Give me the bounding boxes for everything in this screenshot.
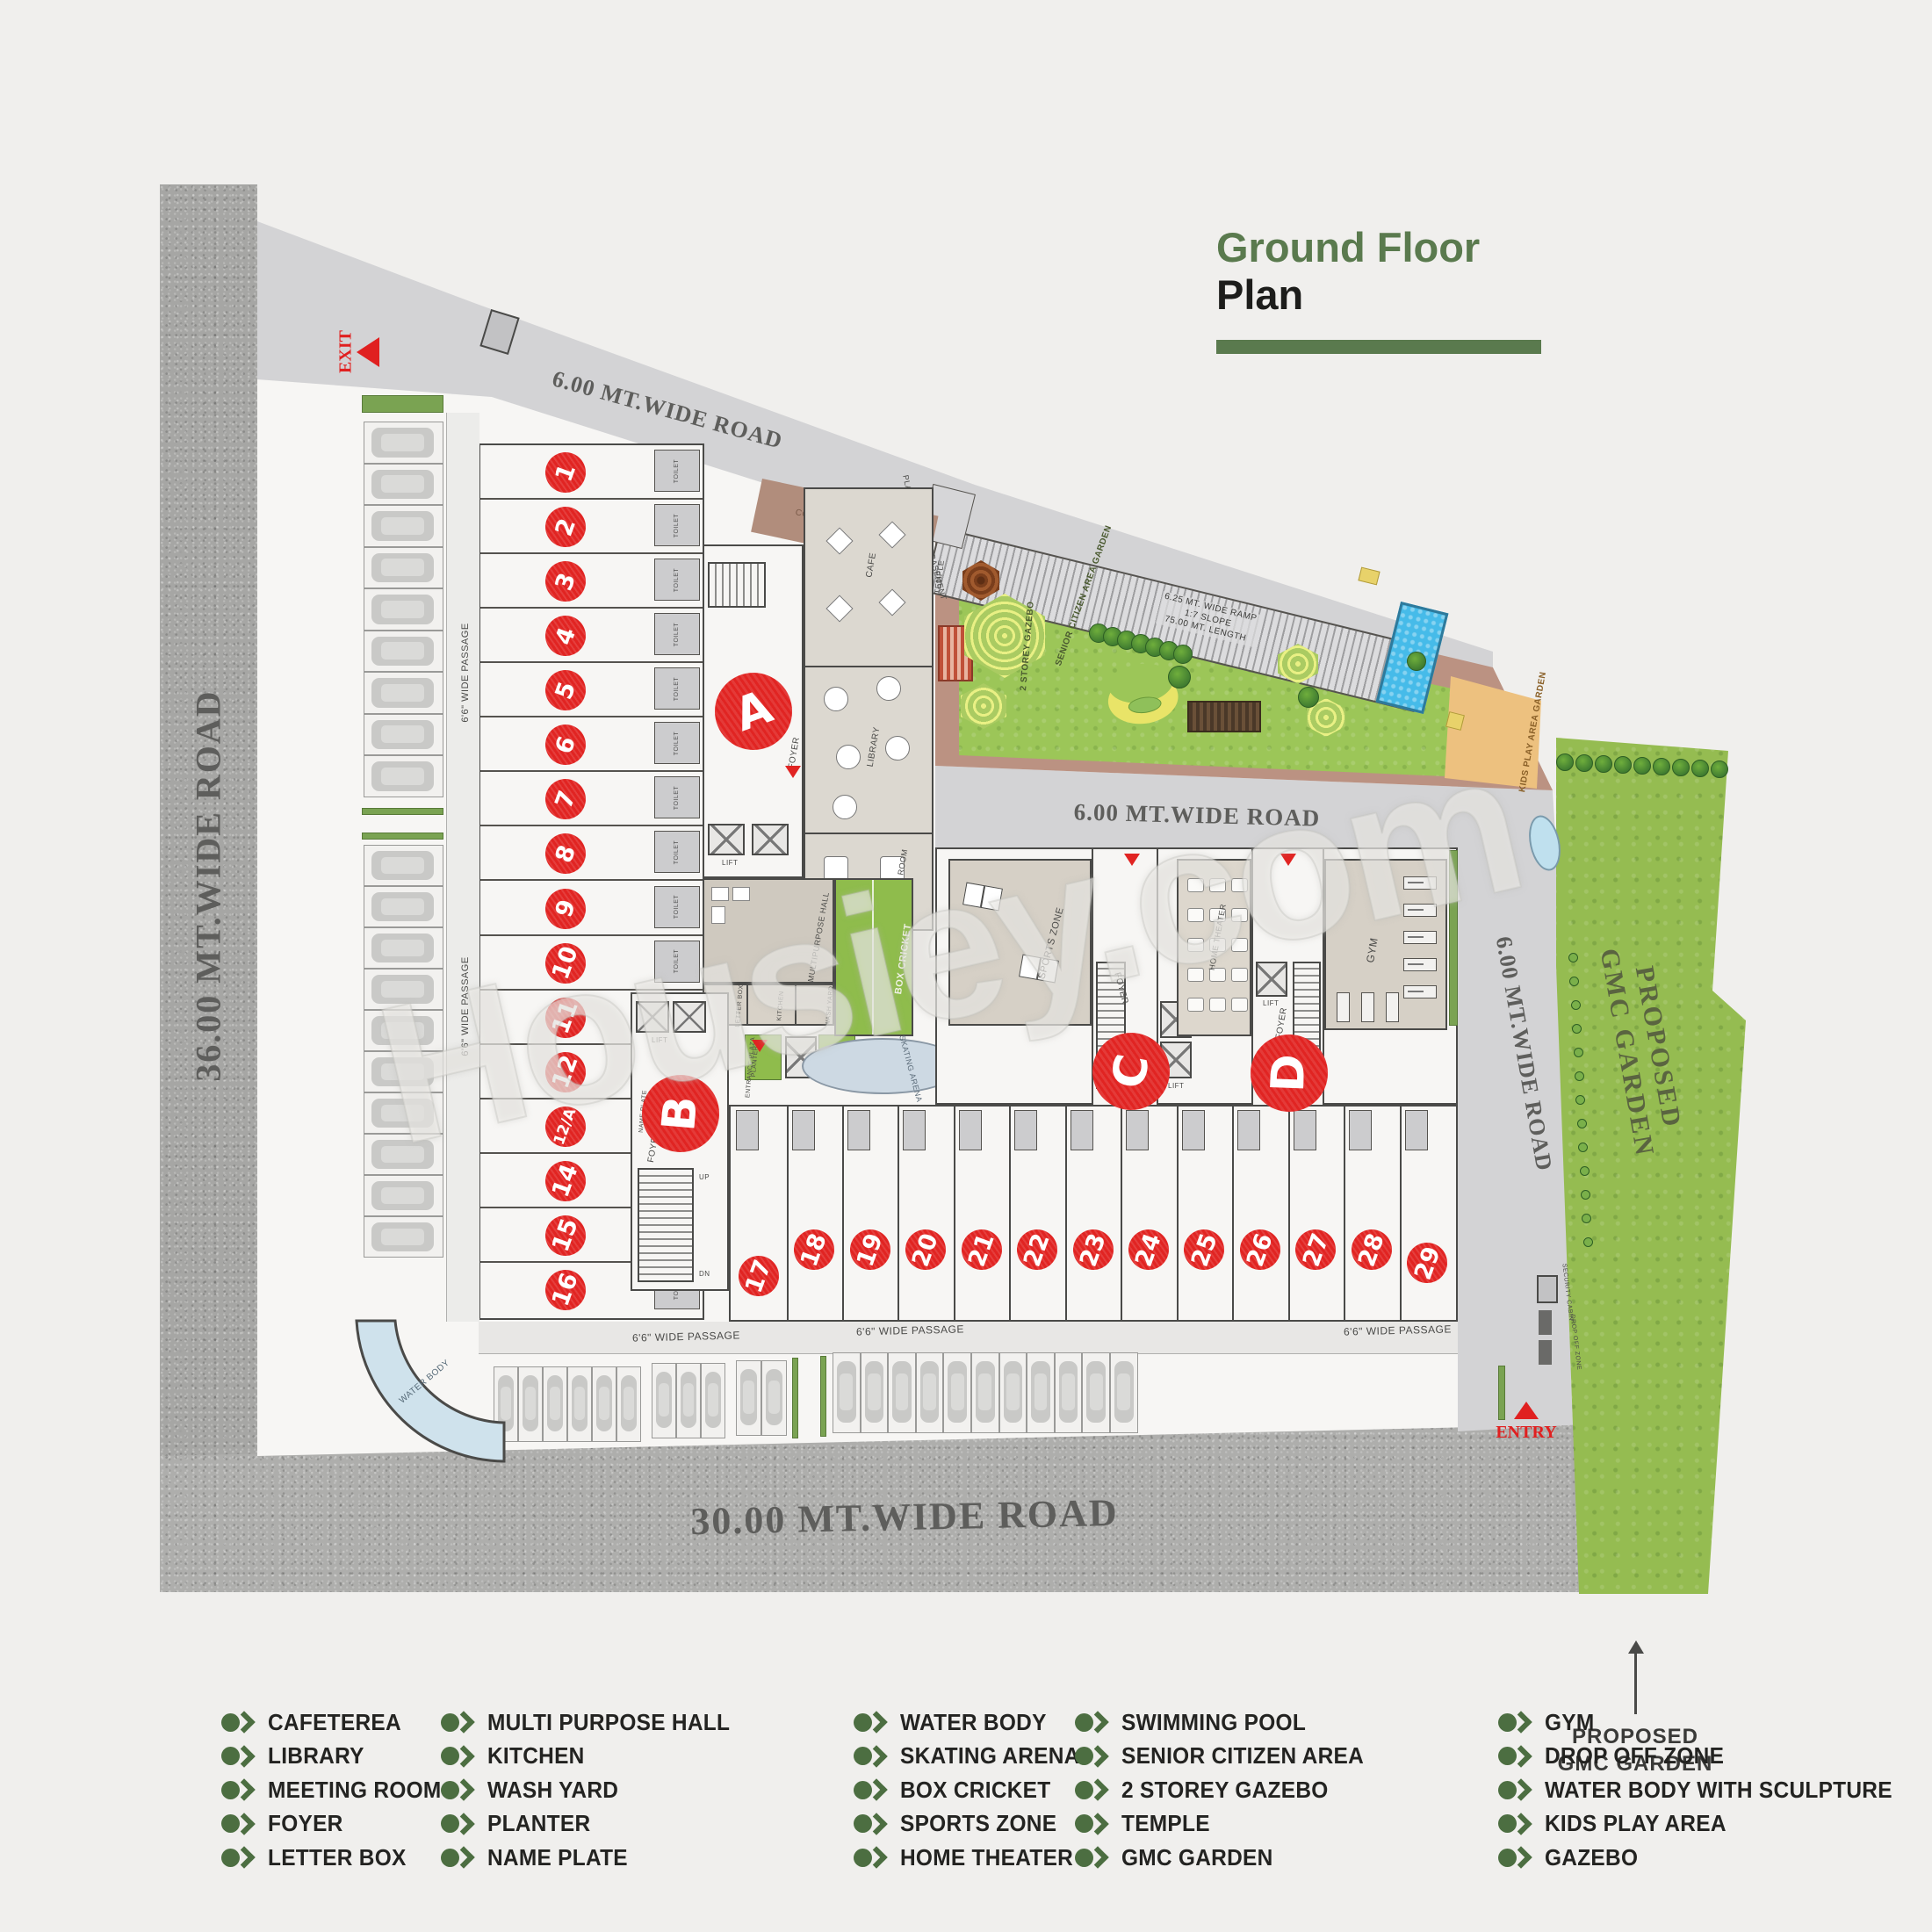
unit-number-circle: 4 [545, 616, 586, 656]
legend-label: WATER BODY WITH SCULPTURE [1545, 1777, 1892, 1804]
legend-label: NAME PLATE [487, 1844, 628, 1871]
block-a-letter: A [728, 681, 779, 742]
legend-item: SKATING ARENA [854, 1741, 1092, 1771]
legend-chevron-icon [452, 1711, 474, 1733]
legend-label: GMC GARDEN [1121, 1844, 1273, 1871]
unit-number: 28 [1353, 1229, 1390, 1270]
unit-number-circle: 26 [1240, 1229, 1280, 1270]
unit-number: 5 [550, 678, 581, 703]
ground-floor-plan: 36.00 MT.WIDE ROAD 30.00 MT.WIDE ROAD 6.… [0, 0, 1932, 1932]
unit-number: 6 [550, 732, 581, 757]
page-title: Ground Floor Plan [1216, 224, 1541, 354]
legend-chevron-icon [1510, 1778, 1532, 1800]
legend-item: MEETING ROOM [221, 1775, 452, 1805]
unit-number-circle: 5 [545, 670, 586, 710]
unit-number: 1 [550, 460, 581, 485]
unit-number-circle: 6 [545, 724, 586, 765]
legend-label: LIBRARY [268, 1742, 364, 1770]
unit-number: 22 [1019, 1229, 1056, 1270]
legend-chevron-icon [1086, 1711, 1108, 1733]
unit-number: 3 [550, 569, 581, 594]
legend-label: MULTI PURPOSE HALL [487, 1709, 730, 1736]
unit-number: 24 [1130, 1229, 1167, 1270]
legend-item: GAZEBO [1498, 1842, 1644, 1872]
legend-label: HOME THEATER [900, 1844, 1073, 1871]
legend-chevron-icon [1510, 1711, 1532, 1733]
gmc-annotation-arrow-icon [1628, 1640, 1644, 1654]
legend-item: GMC GARDEN [1075, 1842, 1283, 1872]
title-line2: Plan [1216, 271, 1541, 319]
block-a-circle: A [715, 673, 792, 750]
unit-number-circle: 19 [850, 1229, 890, 1270]
legend-chevron-icon [452, 1778, 474, 1800]
unit-number: 25 [1186, 1229, 1222, 1270]
unit-number-circle: 20 [905, 1229, 946, 1270]
legend-item: WATER BODY [854, 1707, 1056, 1737]
legend-chevron-icon [1086, 1778, 1108, 1800]
unit-number-circle: 29 [1407, 1243, 1447, 1283]
unit-number-circle: 28 [1352, 1229, 1392, 1270]
legend-label: GAZEBO [1545, 1844, 1638, 1871]
legend-item: SPORTS ZONE [854, 1809, 1067, 1839]
legend-label: MEETING ROOM [268, 1777, 442, 1804]
legend-label: 2 STOREY GAZEBO [1121, 1777, 1329, 1804]
unit-number: 27 [1297, 1229, 1334, 1270]
unit-number: 20 [907, 1229, 944, 1270]
legend-item: SWIMMING POOL [1075, 1707, 1317, 1737]
legend-item: HOME THEATER [854, 1842, 1085, 1872]
unit-number-circle: 24 [1128, 1229, 1169, 1270]
legend-item: BOX CRICKET [854, 1775, 1060, 1805]
legend-chevron-icon [233, 1778, 255, 1800]
unit-number-circle: 17 [739, 1256, 779, 1296]
legend-label: SPORTS ZONE [900, 1810, 1056, 1837]
legend-chevron-icon [233, 1711, 255, 1733]
legend-item: SENIOR CITIZEN AREA [1075, 1741, 1380, 1771]
unit-number-circle: 27 [1295, 1229, 1336, 1270]
legend-item: MULTI PURPOSE HALL [441, 1707, 746, 1737]
unit-number: 18 [796, 1229, 833, 1270]
unit-number-circle: 23 [1073, 1229, 1114, 1270]
legend-label: SWIMMING POOL [1121, 1709, 1306, 1736]
title-line1: Ground Floor [1216, 224, 1541, 271]
legend-label: KITCHEN [487, 1742, 585, 1770]
legend-label: WATER BODY [900, 1709, 1047, 1736]
legend-item: LETTER BOX [221, 1842, 415, 1872]
legend-label: TEMPLE [1121, 1810, 1210, 1837]
legend-item: NAME PLATE [441, 1842, 637, 1872]
legend-item: TEMPLE [1075, 1809, 1215, 1839]
unit-number: 19 [852, 1229, 889, 1270]
legend-label: GYM [1545, 1709, 1595, 1736]
unit-number-circle: 22 [1017, 1229, 1057, 1270]
legend-label: SENIOR CITIZEN AREA [1121, 1742, 1364, 1770]
legend-label: SKATING ARENA [900, 1742, 1080, 1770]
legend-chevron-icon [865, 1711, 887, 1733]
legend-label: CAFETEREA [268, 1709, 401, 1736]
legend-label: BOX CRICKET [900, 1777, 1050, 1804]
unit-number: 4 [550, 624, 581, 648]
unit-number: 17 [740, 1256, 777, 1296]
title-underline [1216, 340, 1541, 354]
legend-item: CAFETEREA [221, 1707, 410, 1737]
legend-label: PLANTER [487, 1810, 590, 1837]
legend-label: FOYER [268, 1810, 343, 1837]
unit-number-circle: 21 [962, 1229, 1002, 1270]
legend-item: LIBRARY [221, 1741, 371, 1771]
unit-number-circle: 18 [794, 1229, 834, 1270]
legend-chevron-icon [865, 1778, 887, 1800]
legend-item: GYM [1498, 1707, 1597, 1737]
unit-number-circle: 2 [545, 507, 586, 547]
unit-number: 21 [963, 1229, 1000, 1270]
legend-item: KITCHEN [441, 1741, 591, 1771]
unit-number: 23 [1075, 1229, 1112, 1270]
unit-number: 26 [1242, 1229, 1279, 1270]
unit-number-circle: 3 [545, 561, 586, 602]
unit-number: 16 [547, 1270, 584, 1310]
legend-item: DROP OFF ZONE [1498, 1741, 1735, 1771]
legend-label: KIDS PLAY AREA [1545, 1810, 1727, 1837]
legend-label: WASH YARD [487, 1777, 618, 1804]
legend-item: WATER BODY WITH SCULPTURE [1498, 1775, 1914, 1805]
legend-item: PLANTER [441, 1809, 597, 1839]
legend-item: 2 STOREY GAZEBO [1075, 1775, 1342, 1805]
legend-label: DROP OFF ZONE [1545, 1742, 1724, 1770]
legend-label: LETTER BOX [268, 1844, 407, 1871]
unit-number-circle: 16 [545, 1270, 586, 1310]
unit-number: 29 [1409, 1243, 1445, 1283]
gmc-annotation-line [1634, 1653, 1637, 1714]
legend-item: FOYER [221, 1809, 348, 1839]
legend-item: WASH YARD [441, 1775, 627, 1805]
legend-item: KIDS PLAY AREA [1498, 1809, 1738, 1839]
unit-number-circle: 1 [545, 452, 586, 493]
unit-number: 2 [550, 515, 581, 539]
